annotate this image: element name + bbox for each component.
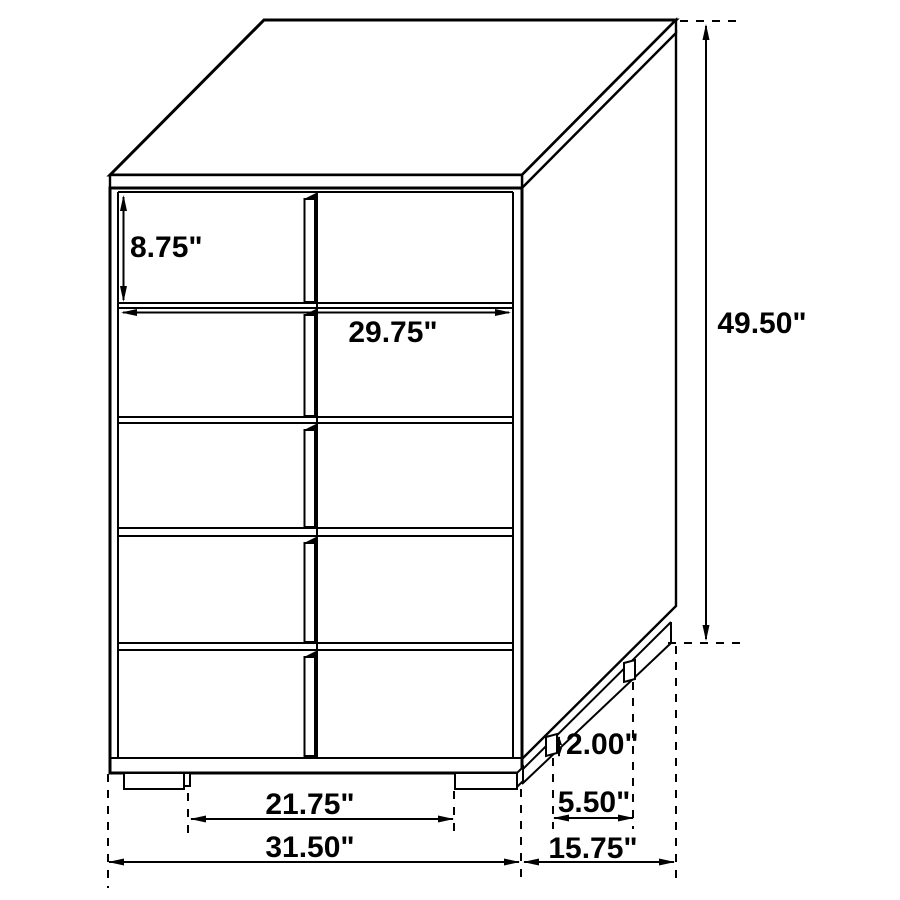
furniture-dimension-diagram: 8.75" 29.75" 49.50" 2.00" 5.50" 21.75" 3… [0, 0, 900, 900]
dimension-label-top-drawer-height: 8.75" [130, 231, 203, 264]
top-slab-front-edge [110, 175, 522, 188]
dimension-label-foot-height: 2.00" [566, 728, 639, 761]
dimension-label-drawer-width: 29.75" [348, 316, 437, 349]
dimension-label-front-foot-spacing: 21.75" [265, 788, 354, 821]
dimension-label-overall-width: 31.50" [265, 831, 354, 864]
dimension-label-overall-height: 49.50" [717, 307, 806, 340]
chest-body [110, 20, 676, 789]
drawer-handle-bars [305, 199, 316, 756]
dimension-label-overall-depth: 15.75" [548, 832, 637, 865]
chest-drawing-svg: 8.75" 29.75" 49.50" 2.00" 5.50" 21.75" 3… [0, 0, 900, 900]
dimension-label-side-foot-spacing: 5.50" [558, 786, 631, 819]
